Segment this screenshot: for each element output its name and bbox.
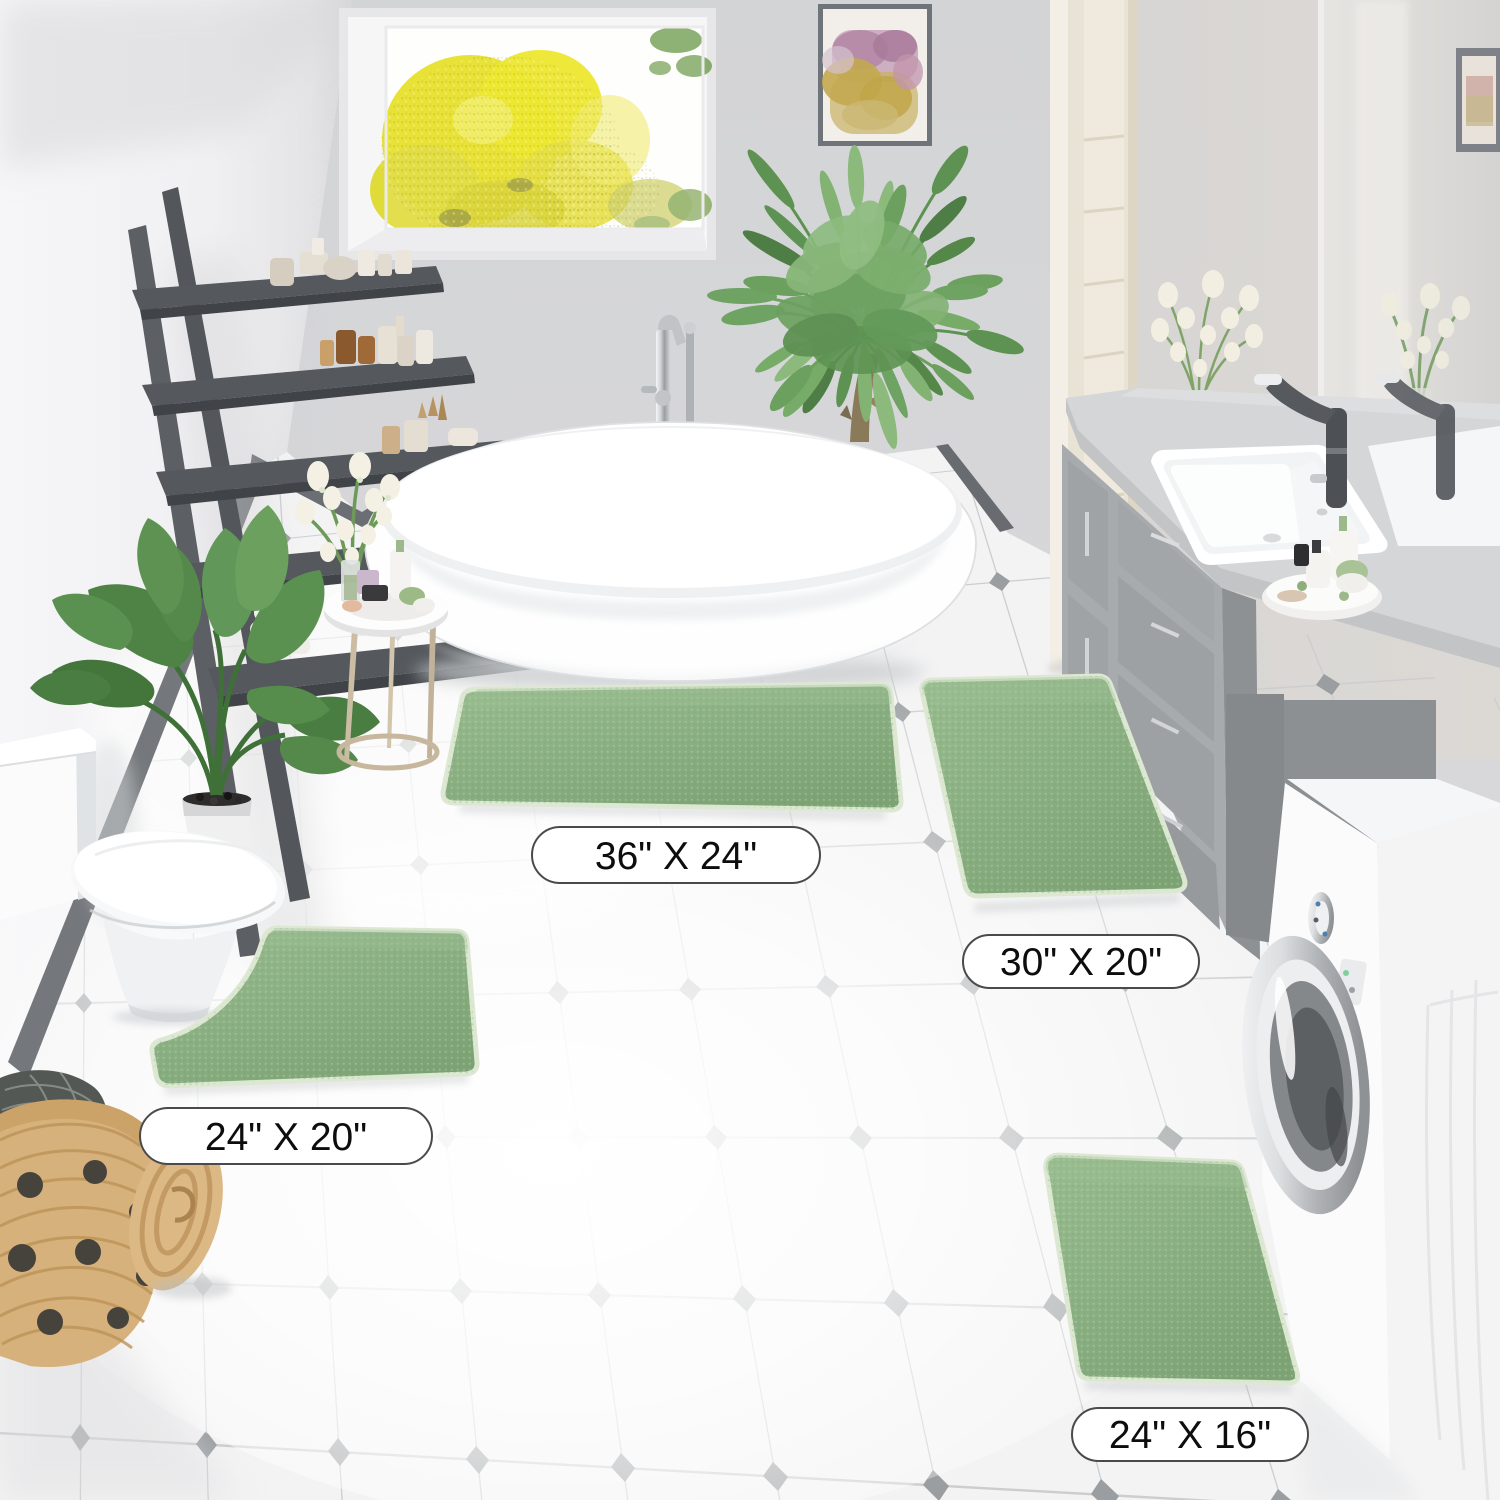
svg-text:30" X 20": 30" X 20" — [1000, 941, 1162, 984]
svg-text:24" X 16": 24" X 16" — [1109, 1414, 1271, 1457]
svg-text:36" X 24": 36" X 24" — [595, 835, 757, 878]
svg-text:24" X 20": 24" X 20" — [205, 1116, 367, 1159]
